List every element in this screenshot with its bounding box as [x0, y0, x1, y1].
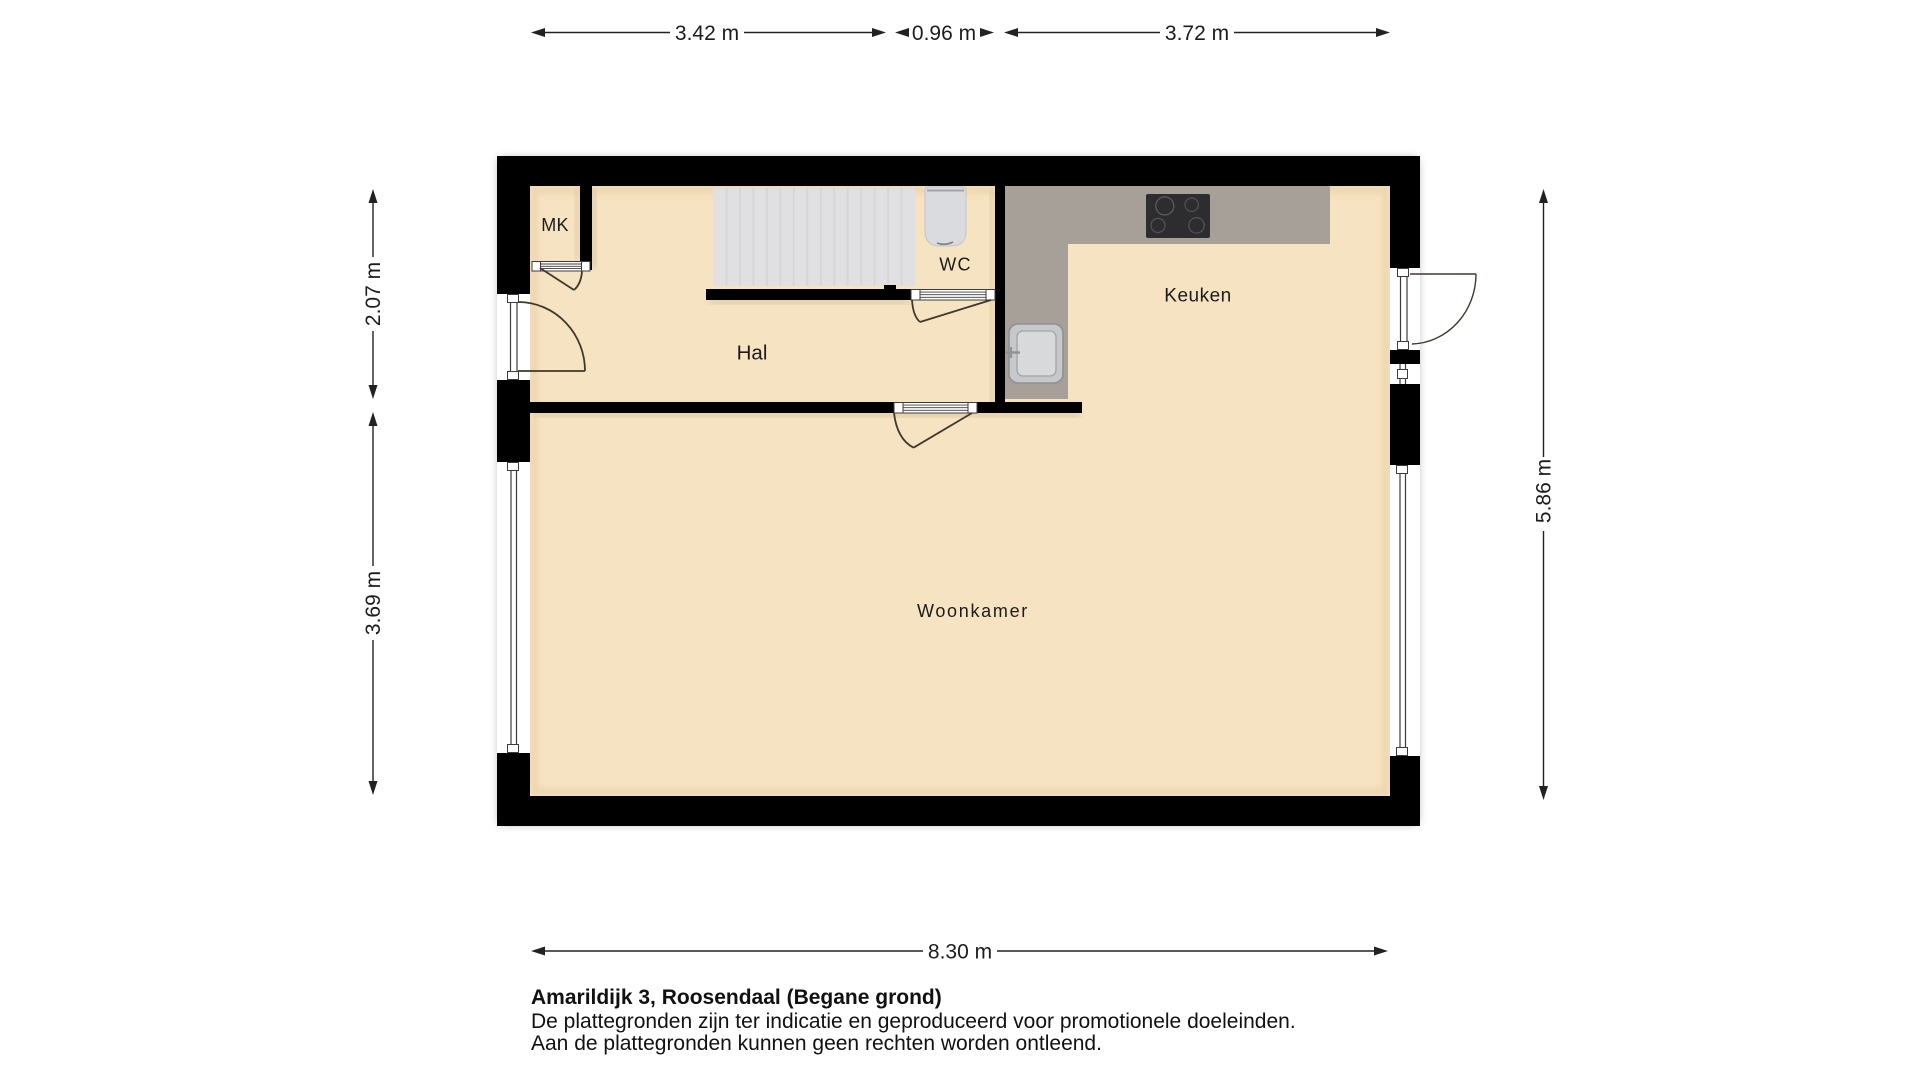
svg-text:De plattegronden zijn ter indi: De plattegronden zijn ter indicatie en g…	[531, 1010, 1296, 1033]
svg-text:2.07 m: 2.07 m	[362, 262, 385, 326]
svg-text:3.69 m: 3.69 m	[362, 571, 385, 635]
svg-text:0.96 m: 0.96 m	[912, 22, 976, 45]
svg-text:Woonkamer: Woonkamer	[917, 601, 1029, 621]
svg-text:MK: MK	[541, 215, 569, 235]
svg-text:Hal: Hal	[737, 342, 768, 365]
svg-text:3.42 m: 3.42 m	[675, 22, 739, 45]
svg-text:3.72 m: 3.72 m	[1165, 22, 1229, 45]
svg-text:Aan de plattegronden kunnen ge: Aan de plattegronden kunnen geen rechten…	[531, 1032, 1102, 1055]
svg-text:5.86 m: 5.86 m	[1533, 459, 1556, 523]
svg-text:Keuken: Keuken	[1164, 286, 1231, 307]
svg-text:Amarildijk 3, Roosendaal (Bega: Amarildijk 3, Roosendaal (Begane grond)	[531, 986, 942, 1009]
svg-text:WC: WC	[939, 255, 971, 275]
svg-text:8.30 m: 8.30 m	[928, 941, 992, 964]
